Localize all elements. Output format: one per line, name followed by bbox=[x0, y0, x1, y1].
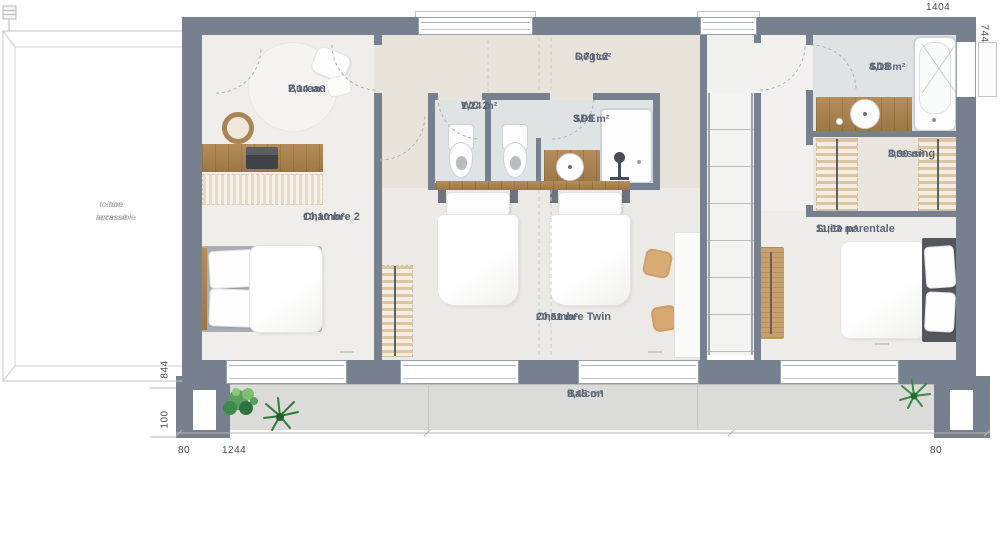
shower-drain bbox=[637, 160, 641, 164]
wall-bottom-3 bbox=[517, 360, 580, 384]
window-right-recess bbox=[978, 42, 997, 97]
room-area: 7,14 m² bbox=[288, 82, 324, 97]
bureau-office-chair bbox=[222, 112, 254, 144]
hall-strip-right bbox=[653, 93, 707, 190]
room-area: 9,45 m² bbox=[567, 387, 603, 402]
twin-bed-2-post-l bbox=[550, 190, 558, 203]
room-area: 3,93 m² bbox=[573, 112, 609, 127]
floor-plan-canvas: Bureau 7,14 m² Chambre 2 10,10 m² WC 2 1… bbox=[0, 0, 1000, 552]
dim-bottom-center: 1244 bbox=[222, 445, 246, 456]
twin-bed-1-post-r bbox=[510, 190, 518, 203]
window-right bbox=[956, 42, 976, 97]
wall-bureau-stub bbox=[374, 35, 382, 45]
chambre2-pillow-1 bbox=[208, 249, 256, 289]
suite-bed-duvet bbox=[841, 242, 925, 338]
bathtub-drain bbox=[932, 118, 936, 122]
room-area: 4,13 m² bbox=[869, 60, 905, 75]
wall-bottom-4 bbox=[697, 360, 782, 384]
wall-bottom-2 bbox=[345, 360, 402, 384]
dim-right: 744 bbox=[979, 24, 990, 42]
balcony-door-3 bbox=[578, 360, 699, 384]
balcony-door-1 bbox=[226, 360, 347, 384]
wall-bath-top-3 bbox=[593, 93, 660, 100]
twin-bed-1-post-l bbox=[438, 190, 446, 203]
shower-base bbox=[610, 177, 629, 180]
wall-right-upper bbox=[956, 17, 976, 42]
bathtub-inner bbox=[919, 42, 951, 114]
wall-bath-right bbox=[653, 100, 660, 183]
window-top-1 bbox=[418, 17, 533, 35]
shower-head bbox=[614, 152, 625, 163]
wall-sdb-dressing bbox=[806, 131, 958, 137]
dressing-wardrobe-right-rail bbox=[937, 139, 939, 210]
bureau-rug-striped bbox=[202, 174, 323, 205]
wall-stair-right-main bbox=[754, 93, 761, 360]
balcony-door-4 bbox=[780, 360, 899, 384]
room-area: 1,24 m² bbox=[461, 99, 497, 114]
suite-corridor-floor bbox=[754, 35, 813, 217]
balcony-divider-1 bbox=[428, 384, 429, 430]
wall-bath-top-1 bbox=[428, 93, 438, 100]
chambre2-duvet bbox=[250, 246, 322, 332]
twin-bed-2-duvet bbox=[550, 215, 630, 305]
wall-top-3 bbox=[757, 17, 958, 35]
wall-dressing-suite bbox=[806, 211, 958, 217]
balcony-door-2 bbox=[400, 360, 519, 384]
twin-bed-2-pillow bbox=[558, 192, 622, 216]
suite-clothes-rack-rail bbox=[770, 252, 772, 334]
wall-bureau-main bbox=[374, 93, 382, 360]
stair-landing-floor bbox=[707, 35, 754, 93]
wall-top-2 bbox=[533, 17, 700, 35]
room-area: 11,63 m² bbox=[816, 222, 857, 237]
vent-mark-3 bbox=[875, 343, 889, 345]
wall-right-lower bbox=[956, 97, 976, 384]
wall-corridor-sdb-stub bbox=[806, 35, 813, 45]
sde-faucet bbox=[568, 165, 572, 169]
twin-bed-1-duvet bbox=[438, 215, 518, 305]
room-area: 6,71 m² bbox=[575, 50, 611, 65]
balcony-pillar-left-window bbox=[193, 390, 216, 430]
vent-mark-1 bbox=[340, 351, 354, 353]
twin-headboard-shelf bbox=[436, 181, 630, 190]
twin-bed-2-post-r bbox=[622, 190, 630, 203]
staircase-rail-right bbox=[751, 93, 753, 355]
dim-left-lower: 100 bbox=[160, 410, 171, 428]
room-degt2-floor bbox=[374, 35, 700, 100]
chambre2-pillow-2 bbox=[208, 288, 255, 328]
window-top-2 bbox=[700, 17, 757, 35]
roof-terrace-outline bbox=[3, 31, 182, 381]
dim-bottom-left: 80 bbox=[178, 445, 190, 456]
balcony-pillar-right-window bbox=[950, 390, 973, 430]
laptop-icon bbox=[246, 147, 278, 169]
wall-stair-right-stub bbox=[754, 35, 761, 43]
sdb-soap bbox=[836, 118, 843, 125]
wall-left bbox=[182, 17, 202, 384]
wall-top-1 bbox=[183, 17, 418, 35]
twin-bed-1-pillow bbox=[446, 192, 510, 216]
wall-stair-left bbox=[700, 35, 707, 360]
dim-top: 1404 bbox=[926, 2, 950, 13]
suite-pillow-2 bbox=[924, 291, 956, 333]
twin-wardrobe-rail bbox=[394, 266, 396, 356]
balcony-divider-2 bbox=[697, 384, 698, 430]
hall-strip-left bbox=[374, 93, 435, 190]
sdb-faucet bbox=[863, 112, 867, 116]
dressing-wardrobe-left-rail bbox=[836, 139, 838, 210]
terrace-note-line2: non accessible bbox=[96, 198, 136, 224]
wall-sde-nook bbox=[536, 138, 541, 183]
room-area: 20,51 m² bbox=[536, 310, 578, 325]
staircase bbox=[707, 93, 754, 355]
toilet-1-seat bbox=[456, 156, 467, 170]
room-area: 10,10 m² bbox=[303, 210, 345, 225]
wall-bath-left bbox=[428, 100, 435, 190]
dim-bottom-right: 80 bbox=[930, 445, 942, 456]
staircase-rail-left bbox=[708, 93, 710, 355]
room-area: 3,30 m² bbox=[888, 147, 924, 162]
suite-pillow-1 bbox=[924, 245, 957, 289]
vent-mark-2 bbox=[648, 351, 662, 353]
dim-left-upper: 844 bbox=[160, 360, 171, 378]
toilet-2-seat bbox=[510, 156, 521, 170]
chimney-icon bbox=[3, 6, 16, 31]
